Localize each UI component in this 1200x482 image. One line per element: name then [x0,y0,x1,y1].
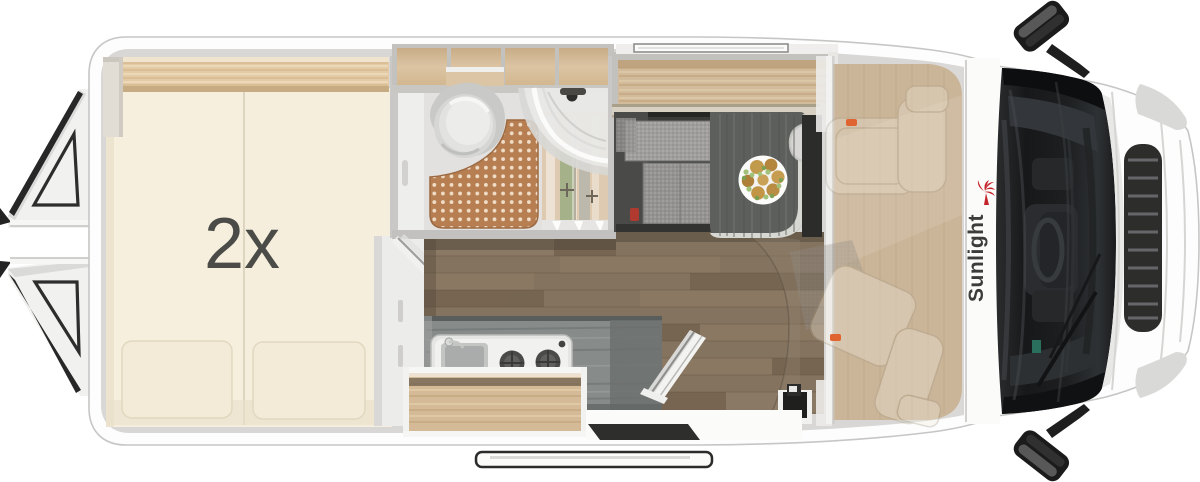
svg-text:Sunlight: Sunlight [965,214,988,302]
svg-text:2x: 2x [204,204,280,284]
